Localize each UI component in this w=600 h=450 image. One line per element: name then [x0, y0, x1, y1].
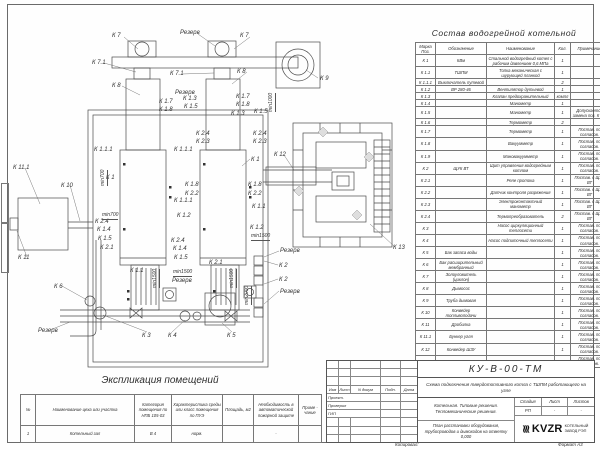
- spec-table-row: К 1.6Термометр2: [416, 119, 600, 126]
- spec-table-row: К 2ЩУК ВТЩит управления водогрейным котл…: [416, 162, 600, 174]
- equipment-callout-label: К 7: [112, 33, 121, 39]
- stamp-grid-row: Проект.: [327, 394, 417, 402]
- equipment-callout-label: К 1.2: [177, 213, 191, 219]
- spec-designation: [436, 126, 487, 138]
- stamp-empty-cell: [401, 369, 417, 376]
- spec-designation: [436, 100, 487, 107]
- spec-name: [487, 79, 555, 86]
- spec-note: Постав. по согласов.: [571, 247, 600, 259]
- dimension-label: min1500: [229, 269, 237, 288]
- stamp-role-cell: Проверил: [327, 402, 381, 409]
- equipment-callout-label: К 5: [227, 333, 236, 339]
- spec-name: [487, 295, 555, 307]
- equipment-callout-label: К 1.8: [185, 182, 199, 188]
- spec-table-row: К 6Бак расширительный мембранный1Постав.…: [416, 259, 600, 271]
- spec-name: Топка механическая с шурующей планкой: [487, 67, 555, 79]
- spec-qty: 1: [555, 174, 571, 186]
- spec-column-header: Кол.: [555, 43, 571, 55]
- stamp-empty-cell: [327, 369, 339, 376]
- spec-qty: 1: [555, 55, 571, 67]
- equipment-callout-label: К 2.3: [196, 139, 210, 145]
- spec-pos: К 2.4: [416, 210, 436, 222]
- stamp-empty-cell: [351, 361, 381, 368]
- spec-name: Термометр: [487, 126, 555, 138]
- stamp-empty-cell: [327, 361, 339, 368]
- equipment-callout-label: К 11.1: [13, 165, 29, 171]
- spec-designation: ВР 280-46: [436, 86, 487, 93]
- spec-note: [571, 119, 600, 126]
- spec-pos: К 8: [416, 283, 436, 295]
- spec-table-row: К 1.5Манометр1Допускается замена поз. К …: [416, 107, 600, 119]
- spec-note: Постав. по согласов.: [571, 331, 600, 343]
- spec-qty: 1: [555, 307, 571, 319]
- equipment-callout-label: К 1.7: [159, 99, 173, 105]
- expl-column-header: Необходимость в автоматической пожарной …: [254, 395, 299, 426]
- stamp-empty-cell: [401, 435, 417, 442]
- spec-pos: К 1.1.1: [416, 79, 436, 86]
- spec-pos: К 1.1: [416, 67, 436, 79]
- equipment-callout-label: К 1.4: [97, 227, 111, 233]
- spec-table-row: К 7Золоуловитель (циклон)1Постав. по сог…: [416, 271, 600, 283]
- equipment-callout-label: К 13: [393, 245, 405, 251]
- equipment-callout-label: Резерв: [172, 278, 192, 284]
- expl-column-header: Наименование цеха или участка: [36, 395, 135, 426]
- expl-table-header-row: №Наименование цеха или участкаКатегория …: [21, 395, 322, 426]
- spec-qty: 1: [555, 222, 571, 234]
- spec-note: Постав. по согласов.: [571, 259, 600, 271]
- spec-qty: 1: [555, 67, 571, 79]
- spec-name: [487, 331, 555, 343]
- spec-designation: [436, 138, 487, 150]
- equipment-callout-label: К 1.3: [183, 96, 197, 102]
- spec-name: [487, 247, 555, 259]
- spec-table-row: К 5Бак запаса воды1Постав. по согласов.: [416, 247, 600, 259]
- stamp-empty-cell: [351, 435, 381, 442]
- equipment-callout-label: К 1.1.1: [174, 147, 193, 153]
- stamp-empty-cell: [381, 377, 401, 384]
- expl-table-row: 1Котельный залВ 4норм.-: [21, 426, 322, 443]
- equipment-callout-label: К 2.1: [100, 245, 114, 251]
- spec-designation: Бак расширительный мембранный: [436, 259, 487, 271]
- spec-table-row: К 1.2ВР 280-46Вентилятор дутьевой1: [416, 86, 600, 93]
- spec-table-row: К 10Конвейер топливоподачи1Постав. по со…: [416, 307, 600, 319]
- spec-designation: [436, 210, 487, 222]
- equipment-callout-label: К 1.5: [254, 109, 268, 115]
- spec-qty: 1: [555, 126, 571, 138]
- stamp-empty-cell: [401, 377, 417, 384]
- stamp-grid-row: [327, 435, 417, 442]
- equipment-callout-label: К 3: [142, 333, 151, 339]
- stamp-grid-row: ГИП: [327, 410, 417, 418]
- stamp-empty-cell: [401, 402, 417, 409]
- equipment-callout-label: К 1.5: [174, 255, 188, 261]
- spec-pos: К 4: [416, 234, 436, 246]
- spec-designation: ЩУК ВТ: [436, 162, 487, 174]
- company-logo-area: ≋ KVZR КОТЕЛЬНЫЙ ЗАВОД РЭП: [515, 416, 594, 442]
- equipment-callout-label: К 2.4: [171, 238, 185, 244]
- equipment-callout-label: К 8: [112, 83, 121, 89]
- spec-designation: [436, 150, 487, 162]
- spec-table-row: К 3Насос циркуляционный теплосети1Постав…: [416, 222, 600, 234]
- equipment-callout-label: К 2.2: [185, 191, 199, 197]
- dimension-label: min1500: [152, 269, 160, 288]
- spec-name: Насос циркуляционный теплосети: [487, 222, 555, 234]
- stamp-empty-cell: [381, 418, 401, 425]
- dimension-label: min700: [100, 170, 108, 186]
- spec-column-header: Наименование: [487, 43, 555, 55]
- company-name-line2: ЗАВОД РЭП: [565, 429, 587, 433]
- spec-qty: 1: [555, 343, 571, 355]
- spec-designation: ТШПМ: [436, 67, 487, 79]
- equipment-callout-label: К 12: [274, 152, 286, 158]
- spec-designation: [436, 93, 487, 100]
- sheets-label: Листов: [568, 398, 594, 406]
- spec-name: Электроконтактный манометр: [487, 198, 555, 210]
- stamp-empty-cell: [339, 435, 351, 442]
- stamp-grid-header: Лист: [339, 386, 351, 393]
- dimension-label: min1000: [268, 93, 276, 112]
- stamp-grid-row: [327, 427, 417, 435]
- spec-designation: Выключатель путевой: [436, 79, 487, 86]
- sheet-value: -: [542, 407, 569, 415]
- spec-pos: К 2.2: [416, 186, 436, 198]
- spec-table-row: К 1.4Манометр1: [416, 100, 600, 107]
- stamp-empty-cell: [381, 394, 401, 401]
- spec-table-row: К 1.3Клапан предохранительныйкомпл: [416, 93, 600, 100]
- stage-label: Стадия: [515, 398, 542, 406]
- spec-table-row: К 2.4Термопреобразователь2Постав. с ЩУК …: [416, 210, 600, 222]
- equipment-callout-label: К 2.4: [253, 131, 267, 137]
- kvzr-logo-icon: ≋: [520, 424, 530, 433]
- spec-note: Постав. по согласов.: [571, 319, 600, 331]
- spec-note: [571, 79, 600, 86]
- spec-table-row: К 11.1Бункер угля1Постав. по согласов.: [416, 331, 600, 343]
- spec-note: [571, 93, 600, 100]
- equipment-callout-label: К 2.4: [95, 219, 109, 225]
- expl-cell: норм.: [172, 426, 223, 443]
- spec-pos: К 10: [416, 307, 436, 319]
- spec-note: Постав. с ЩУК ВТ: [571, 186, 600, 198]
- spec-designation: Конвейер ШЗУ: [436, 343, 487, 355]
- spec-designation: Дымосос: [436, 283, 487, 295]
- spec-table-row: К 9Труба дымовая1Постав. по согласов.: [416, 295, 600, 307]
- equipment-callout-label: К 2: [279, 263, 288, 269]
- spec-table-header-row: Марка Поз.ОбозначениеНаименованиеКол.При…: [416, 43, 600, 55]
- spec-name: Мановакуумметр: [487, 150, 555, 162]
- spec-pos: К 1: [416, 55, 436, 67]
- expl-cell: 1: [21, 426, 36, 443]
- spec-pos: К 1.4: [416, 100, 436, 107]
- stamp-empty-cell: [327, 418, 339, 425]
- spec-name: [487, 343, 555, 355]
- spec-table-row: К 4Насос подпиточный теплосети1Постав. п…: [416, 234, 600, 246]
- spec-name: Щит управления водогрейным котлом: [487, 162, 555, 174]
- spec-qty: 1: [555, 331, 571, 343]
- spec-pos: К 11: [416, 319, 436, 331]
- spec-qty: 1: [555, 100, 571, 107]
- spec-note: Постав. с ЩУК ВТ: [571, 198, 600, 210]
- spec-designation: Бак запаса воды: [436, 247, 487, 259]
- spec-note: [571, 55, 600, 67]
- copied-label: Копировал:: [395, 442, 419, 447]
- equipment-callout-label: К 1.1.1: [94, 147, 113, 153]
- spec-table-row: К 12Конвейер ШЗУ1Постав. по согласов.: [416, 343, 600, 355]
- spec-table-row: К 1.1ТШПМТопка механическая с шурующей п…: [416, 67, 600, 79]
- spec-column-header: Обозначение: [436, 43, 487, 55]
- stamp-role-cell: ГИП: [327, 410, 381, 417]
- stamp-empty-cell: [381, 361, 401, 368]
- expl-table: №Наименование цеха или участкаКатегория …: [20, 394, 322, 443]
- equipment-callout-label: К 1.8: [236, 102, 250, 108]
- spec-pos: К 5: [416, 247, 436, 259]
- stamp-empty-cell: [327, 377, 339, 384]
- stamp-empty-cell: [351, 418, 381, 425]
- equipment-callout-label: Резерв: [38, 328, 58, 334]
- stamp-empty-cell: [401, 427, 417, 434]
- spec-qty: 1: [555, 150, 571, 162]
- spec-table-row: К 11Дробилка1Постав. по согласов.: [416, 319, 600, 331]
- dimension-label: min1500: [173, 269, 192, 277]
- equipment-callout-label: К 10: [61, 183, 73, 189]
- spec-qty: 1: [555, 198, 571, 210]
- spec-designation: [436, 174, 487, 186]
- stamp-empty-cell: [351, 377, 381, 384]
- sheet-label: Лист: [542, 398, 569, 406]
- stage-header-row: Стадия Лист Листов: [515, 398, 594, 407]
- stamp-grid-row: [327, 418, 417, 426]
- stamp-empty-cell: [381, 435, 401, 442]
- spec-designation: Золоуловитель (циклон): [436, 271, 487, 283]
- equipment-callout-label: К 1.5: [98, 236, 112, 242]
- spec-table-row: К 1КВмСтальной водогрейный котел с рабоч…: [416, 55, 600, 67]
- company-name: КОТЕЛЬНЫЙ ЗАВОД РЭП: [565, 424, 589, 433]
- spec-note: Постав. с ЩУК ВТ: [571, 210, 600, 222]
- expl-column-header: Категория помещения по НПБ 105-03: [135, 395, 172, 426]
- spec-pos: К 1.3: [416, 93, 436, 100]
- stamp-empty-cell: [351, 427, 381, 434]
- spec-pos: К 1.5: [416, 107, 436, 119]
- spec-qty: 1: [555, 234, 571, 246]
- equipment-callout-label: К 1.2: [250, 225, 264, 231]
- spec-qty: 1: [555, 283, 571, 295]
- spec-name: Датчик контроля разряжения: [487, 186, 555, 198]
- spec-pos: К 7: [416, 271, 436, 283]
- spec-table-title: Состав водогрейной котельной: [415, 28, 593, 38]
- spec-pos: К 1.7: [416, 126, 436, 138]
- equipment-callout-label: К 8: [237, 69, 246, 75]
- equipment-callout-label: К 11: [18, 255, 29, 261]
- equipment-callout-label: К 2.3: [253, 139, 267, 145]
- spec-pos: К 6: [416, 259, 436, 271]
- drawing-sheet: К 7РезервК 7К 7.1К 8К 7.1К 8К 9РезервК 1…: [0, 0, 600, 450]
- spec-table-row: К 1.7Термометр1Постав. по согласов.: [416, 126, 600, 138]
- sheets-value: -: [568, 407, 594, 415]
- spec-table-row: К 1.8Вакуумметр1Постав. по согласов.: [416, 138, 600, 150]
- spec-note: Постав. по согласов.: [571, 295, 600, 307]
- dimension-label: min2000: [244, 286, 252, 305]
- spec-note: Постав. по согласов.: [571, 271, 600, 283]
- expl-table-title: Экспликация помещений: [60, 375, 260, 386]
- spec-qty: 2: [555, 79, 571, 86]
- stamp-empty-cell: [381, 369, 401, 376]
- equipment-callout-label: К 2: [279, 277, 288, 283]
- expl-cell: [223, 426, 254, 443]
- stamp-empty-cell: [401, 394, 417, 401]
- equipment-callout-label: К 1.8: [159, 107, 173, 113]
- expl-cell: В 4: [135, 426, 172, 443]
- equipment-callout-label: К 1.7: [236, 94, 250, 100]
- equipment-callout-label: К 1.4: [173, 246, 187, 252]
- stamp-empty-cell: [401, 418, 417, 425]
- spec-name: [487, 283, 555, 295]
- expl-column-header: №: [21, 395, 36, 426]
- spec-pos: К 12: [416, 343, 436, 355]
- spec-note: Постав. по согласов.: [571, 234, 600, 246]
- stamp-empty-cell: [381, 427, 401, 434]
- spec-designation: Бункер угля: [436, 331, 487, 343]
- spec-table-row: К 1.9Мановакуумметр1Постав. по согласов.: [416, 150, 600, 162]
- spec-note: Постав. по согласов.: [571, 126, 600, 138]
- stamp-empty-cell: [339, 377, 351, 384]
- stamp-empty-cell: [339, 369, 351, 376]
- equipment-callout-label: К 2.1: [209, 260, 223, 266]
- spec-designation: [436, 107, 487, 119]
- spec-pos: К 11.1: [416, 331, 436, 343]
- equipment-callout-label: К 1.1.1: [174, 198, 193, 204]
- document-number: КУ-В-00-ТМ: [418, 361, 594, 378]
- spec-pos: К 1.9: [416, 150, 436, 162]
- spec-qty: 1: [555, 162, 571, 174]
- stamp-empty-cell: [351, 369, 381, 376]
- spec-pos: К 1.2: [416, 86, 436, 93]
- title-block-revision-grid: ИзмЛистN докумПодп.ДатаПроект.ПроверилГИ…: [327, 361, 417, 442]
- spec-designation: [436, 222, 487, 234]
- spec-pos: К 1.6: [416, 119, 436, 126]
- spec-qty: 1: [555, 138, 571, 150]
- stamp-grid-header: Подп.: [381, 386, 401, 393]
- spec-designation: [436, 234, 487, 246]
- spec-qty: 1: [555, 295, 571, 307]
- expl-column-header: Характеристика среды или класс помещения…: [172, 395, 223, 426]
- expl-column-header: Приме - чание: [299, 395, 322, 426]
- spec-qty: 1: [555, 86, 571, 93]
- equipment-callout-label: К 1.1: [130, 268, 144, 274]
- spec-qty: 1: [555, 247, 571, 259]
- equipment-callout-label: К 4: [168, 333, 177, 339]
- scheme-title: Схема подключения твердотопливного котла…: [418, 378, 594, 398]
- spec-name: Вентилятор дутьевой: [487, 86, 555, 93]
- spec-table-row: К 8Дымосос1Постав. по согласов.: [416, 283, 600, 295]
- spec-name: Манометр: [487, 107, 555, 119]
- equipment-callout-label: К 1: [251, 157, 260, 163]
- spec-table: Марка Поз.ОбозначениеНаименованиеКол.При…: [415, 42, 600, 368]
- spec-note: Постав. по согласов.: [571, 162, 600, 174]
- stamp-empty-cell: [401, 361, 417, 368]
- stamp-empty-cell: [339, 418, 351, 425]
- format-label: Формат А3: [558, 442, 583, 447]
- spec-designation: Труба дымовая: [436, 295, 487, 307]
- spec-qty: 1: [555, 259, 571, 271]
- spec-name: Термопреобразователь: [487, 210, 555, 222]
- equipment-callout-label: К 1.8: [248, 182, 262, 188]
- spec-table-row: К 2.1Реле протока1Постав. с ЩУК ВТ: [416, 174, 600, 186]
- stamp-grid-row: [327, 361, 417, 369]
- spec-pos: К 1.8: [416, 138, 436, 150]
- spec-note: Допускается замена поз. К 2.3: [571, 107, 600, 119]
- company-name-line1: КОТЕЛЬНЫЙ: [565, 424, 589, 428]
- spec-qty: 2: [555, 210, 571, 222]
- spec-table-row: К 1.1.1Выключатель путевой2: [416, 79, 600, 86]
- stage-value-row: РП - -: [515, 407, 594, 416]
- equipment-callout-label: Резерв: [280, 289, 300, 295]
- expl-cell: [299, 426, 322, 443]
- spec-name: Манометр: [487, 100, 555, 107]
- equipment-callout-label: К 7.1: [92, 60, 106, 66]
- spec-qty: 1: [555, 319, 571, 331]
- spec-name: Реле протока: [487, 174, 555, 186]
- spec-name: [487, 259, 555, 271]
- spec-designation: [436, 119, 487, 126]
- equipment-callout-label: К 2.4: [196, 131, 210, 137]
- spec-note: Постав. по согласов.: [571, 343, 600, 355]
- spec-note: Постав. по согласов.: [571, 222, 600, 234]
- spec-name: Термометр: [487, 119, 555, 126]
- expl-cell: Котельный зал: [36, 426, 135, 443]
- spec-note: Постав. по согласов.: [571, 150, 600, 162]
- stage-value: РП: [515, 407, 542, 415]
- equipment-callout-label: Резерв: [180, 30, 200, 36]
- spec-designation: [436, 186, 487, 198]
- spec-designation: КВм: [436, 55, 487, 67]
- equipment-callout-label: Резерв: [280, 248, 300, 254]
- stamp-empty-cell: [339, 361, 351, 368]
- spec-designation: Конвейер топливоподачи: [436, 307, 487, 319]
- equipment-callout-label: К 1.5: [184, 104, 198, 110]
- spec-column-header: Марка Поз.: [416, 43, 436, 55]
- stamp-empty-cell: [327, 427, 339, 434]
- spec-name: [487, 319, 555, 331]
- spec-name: [487, 271, 555, 283]
- spec-note: Постав. по согласов.: [571, 283, 600, 295]
- stamp-grid-row: ИзмЛистN докумПодп.Дата: [327, 386, 417, 394]
- spec-qty: 1: [555, 271, 571, 283]
- equipment-callout-label: К 7.1: [170, 71, 184, 77]
- equipment-callout-label: К 7: [240, 33, 249, 39]
- equipment-callout-label: К 6: [54, 284, 63, 290]
- equipment-callout-label: К 2.2: [248, 191, 262, 197]
- stamp-grid-row: Проверил: [327, 402, 417, 410]
- stamp-grid-row: [327, 377, 417, 385]
- spec-pos: К 3: [416, 222, 436, 234]
- spec-pos: К 9: [416, 295, 436, 307]
- kvzr-logo-text: KVZR: [532, 423, 563, 435]
- spec-note: Постав. по согласов.: [571, 307, 600, 319]
- stamp-empty-cell: [401, 410, 417, 417]
- spec-note: [571, 67, 600, 79]
- stamp-empty-cell: [381, 410, 401, 417]
- object-title: Котельная. Типовые решения. Тепломеханич…: [418, 398, 514, 421]
- plan-title: План расстановки оборудования, трубопров…: [418, 421, 514, 443]
- equipment-callout-label: К 1.3: [231, 111, 245, 117]
- spec-pos: К 2: [416, 162, 436, 174]
- title-block-main: КУ-В-00-ТМ Схема подключения твердотопли…: [417, 361, 594, 442]
- spec-name: Насос подпиточный теплосети: [487, 234, 555, 246]
- stamp-empty-cell: [381, 402, 401, 409]
- expl-cell: -: [254, 426, 299, 443]
- spec-pos: К 2.3: [416, 198, 436, 210]
- stamp-role-cell: Проект.: [327, 394, 381, 401]
- spec-name: Вакуумметр: [487, 138, 555, 150]
